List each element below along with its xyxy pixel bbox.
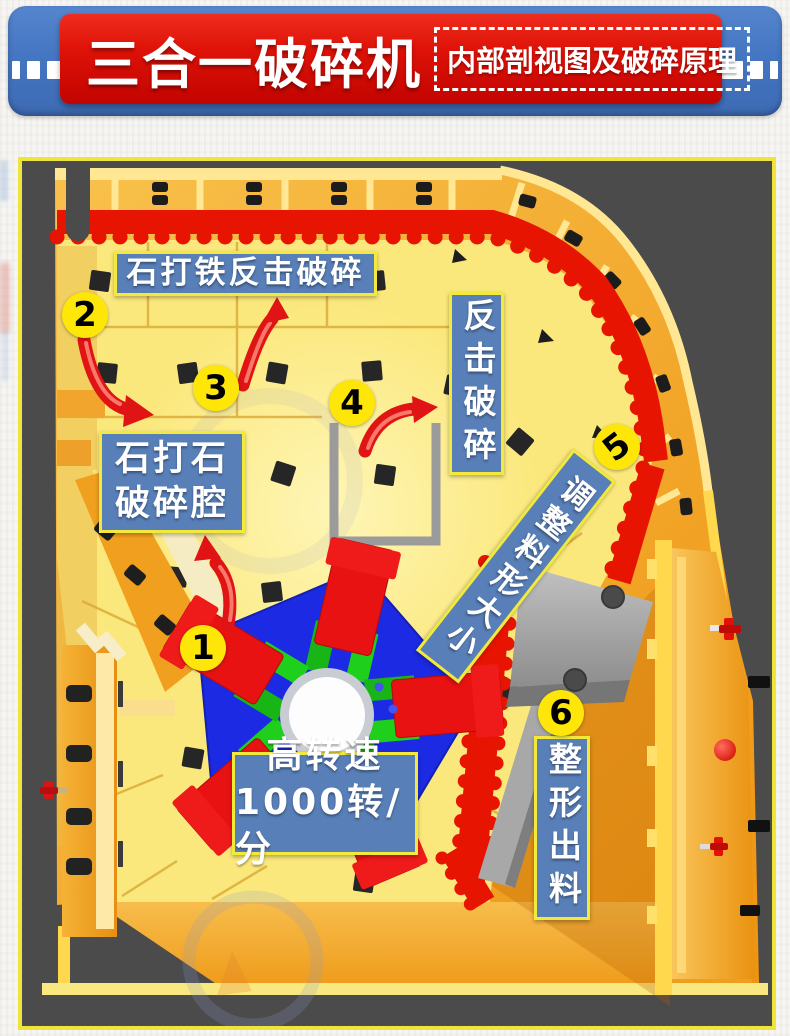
- step-marker-1: 1: [180, 625, 226, 671]
- dash-mark: [770, 61, 778, 79]
- marker-number: 2: [73, 295, 97, 335]
- label-line: 石打石: [115, 437, 229, 483]
- label-stone-on-stone-chamber: 石打石 破碎腔: [99, 431, 245, 533]
- step-marker-3: 3: [193, 365, 239, 411]
- label-line: 1000转/分: [235, 780, 415, 874]
- header-banner: 三合一破碎机 内部剖视图及破碎原理: [8, 6, 782, 116]
- step-marker-5: 5: [594, 424, 640, 470]
- edge-smudge-blue2: [2, 330, 8, 382]
- dash-mark: [12, 61, 20, 79]
- label-impact-crushing: 反击破碎: [449, 292, 504, 475]
- header-red-plate: 三合一破碎机 内部剖视图及破碎原理: [60, 14, 722, 104]
- label-line: 破碎腔: [115, 482, 229, 528]
- page-subtitle: 内部剖视图及破碎原理: [434, 27, 750, 91]
- marker-number: 4: [340, 383, 364, 423]
- marker-number: 3: [204, 368, 228, 408]
- edge-smudge-red: [0, 262, 10, 334]
- step-marker-2: 2: [62, 292, 108, 338]
- step-marker-6: 6: [538, 690, 584, 736]
- marker-number: 5: [595, 424, 638, 470]
- marker-number: 1: [191, 628, 215, 668]
- label-high-speed: 高转速 1000转/分: [232, 752, 418, 855]
- label-stone-on-iron-impact: 石打铁反击破碎: [114, 251, 377, 296]
- label-line: 高转速: [266, 733, 383, 780]
- dash-mark: [27, 61, 40, 79]
- step-marker-4: 4: [329, 380, 375, 426]
- page-title: 三合一破碎机: [86, 20, 422, 99]
- poster-page: { "header": { "title": "三合一破碎机", "subtit…: [0, 0, 790, 1036]
- dash-mark: [750, 61, 763, 79]
- label-shaping-discharge: 整形出料: [534, 736, 590, 920]
- edge-smudge-blue: [0, 160, 8, 202]
- marker-number: 6: [549, 693, 573, 733]
- door-knob: [714, 739, 736, 761]
- feed-opening: [66, 161, 90, 241]
